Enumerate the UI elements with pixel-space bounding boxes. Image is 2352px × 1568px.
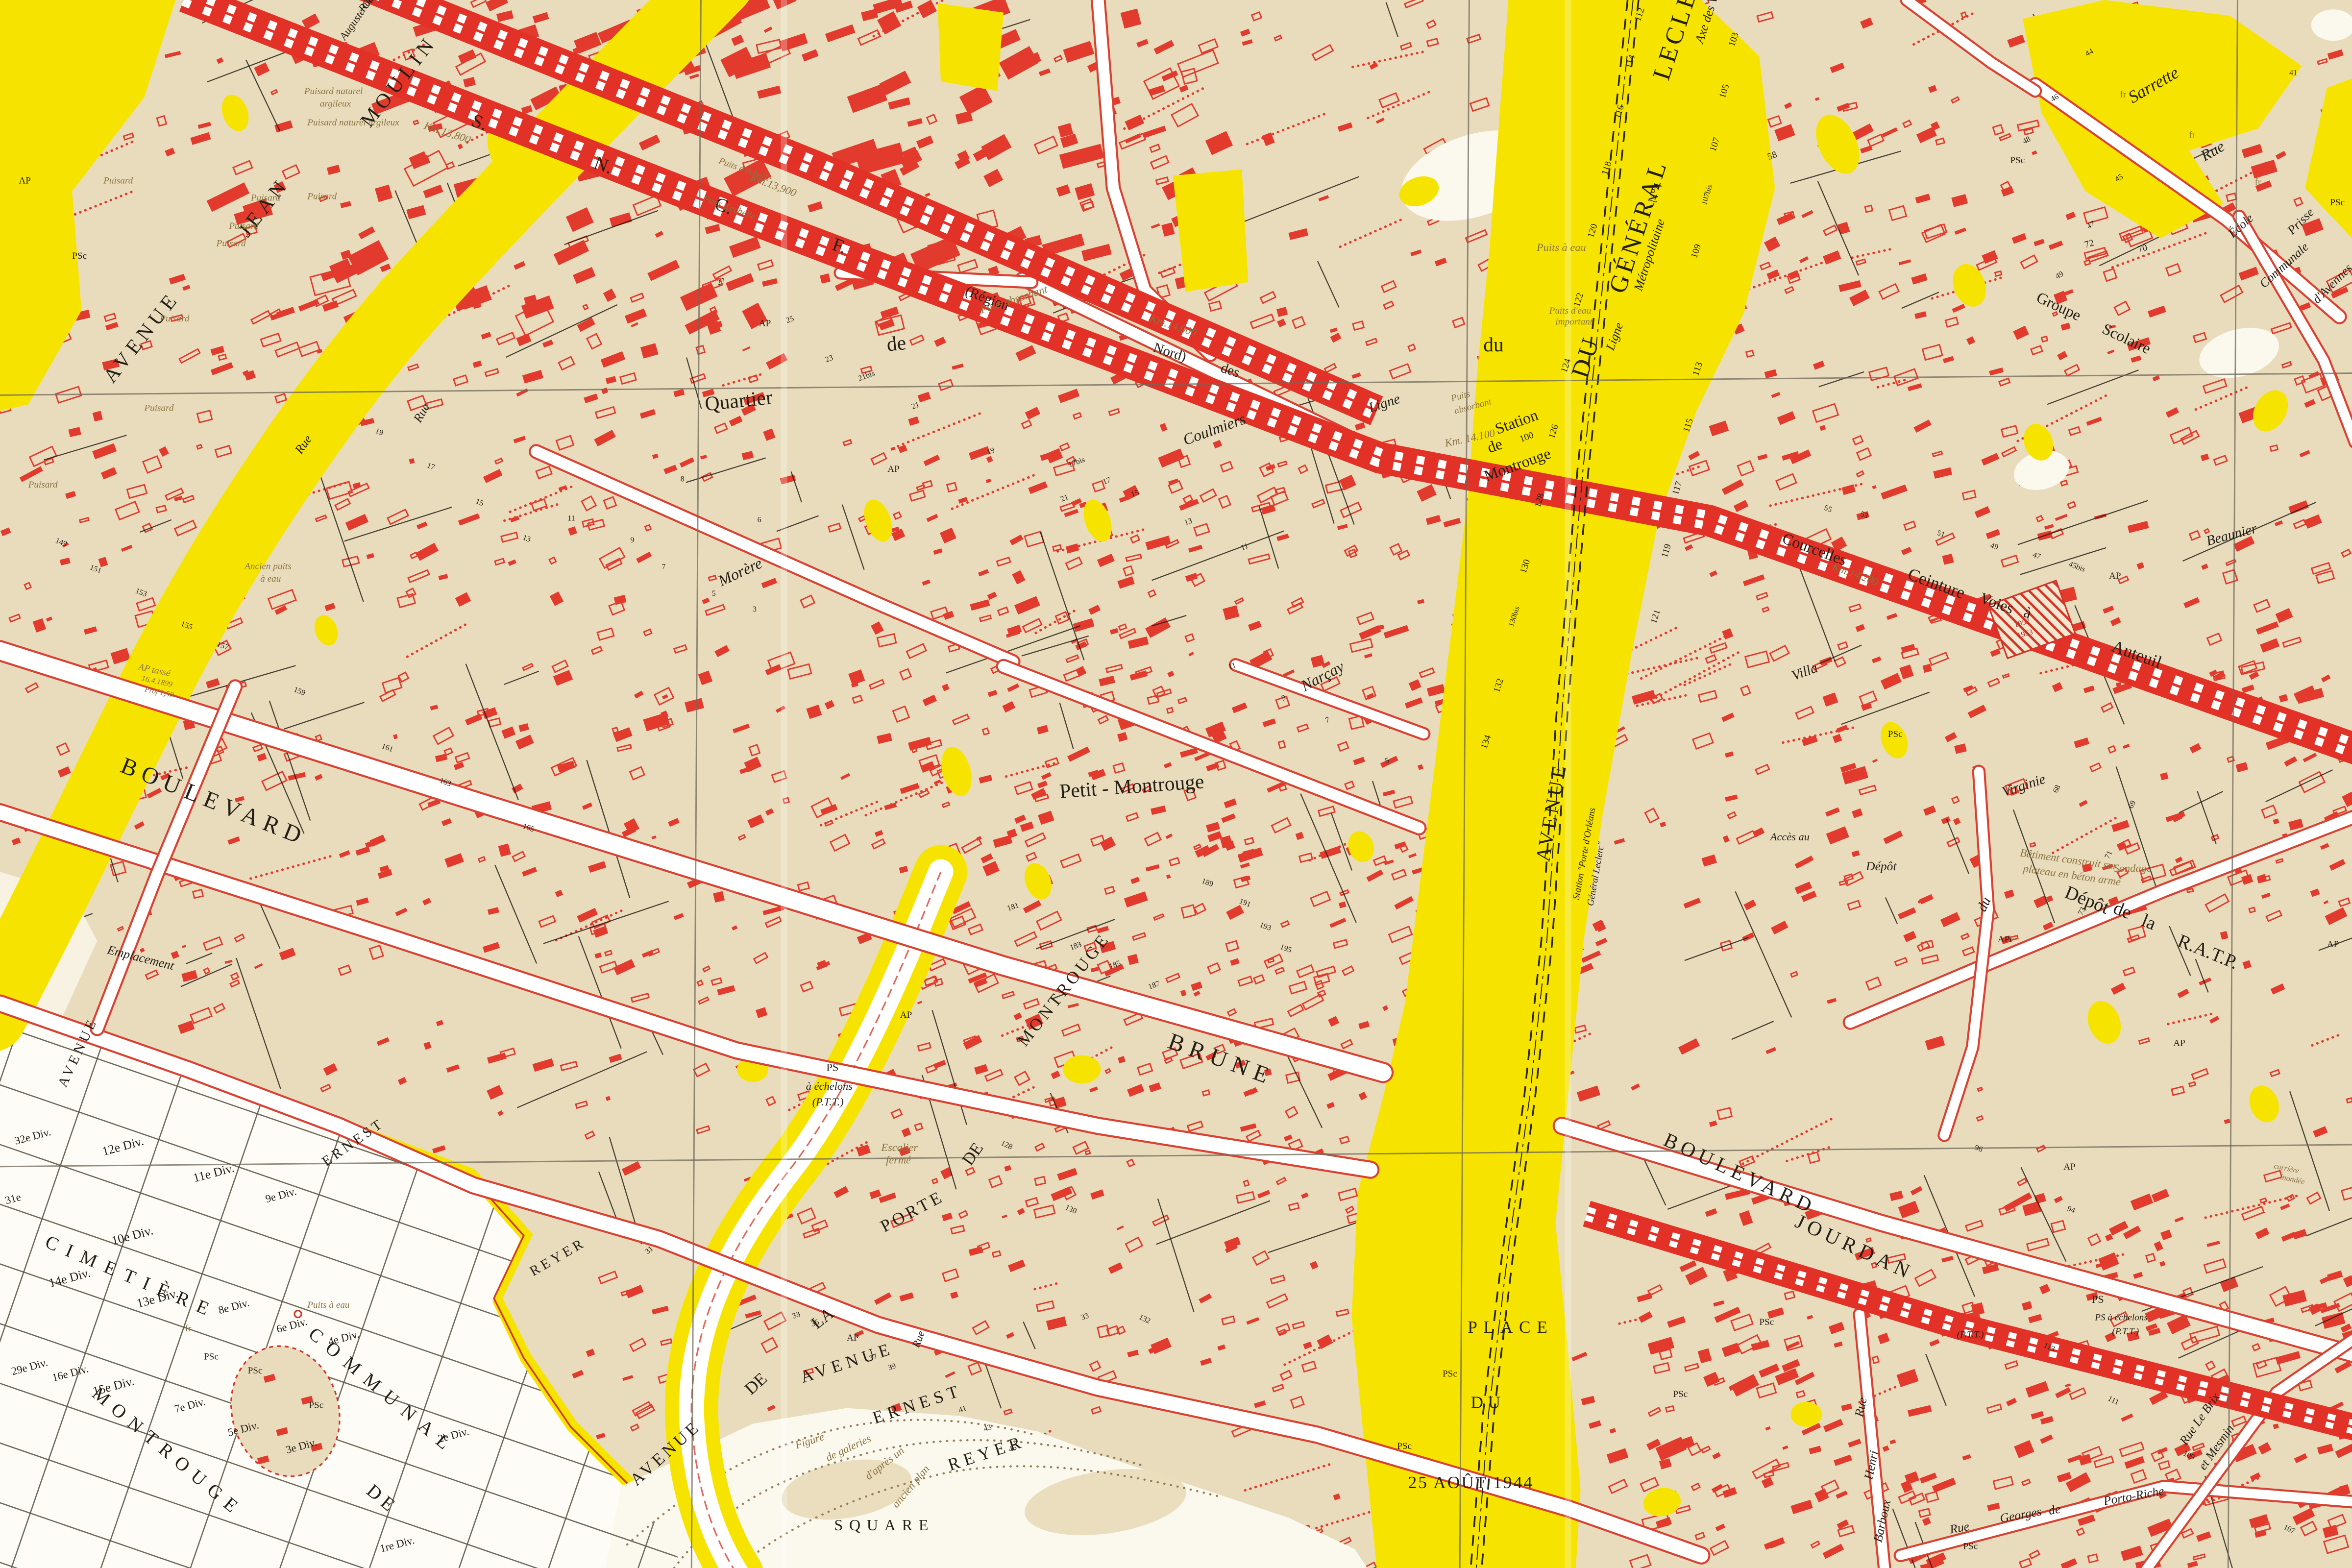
label-puisard-5: Puisard [216,238,246,248]
label-ap-marker-7: AP [900,1010,912,1020]
label-psc-bottom: PSc [1963,1542,1978,1552]
label-fr-marker-1: fr [2120,89,2126,99]
label-ps-echelons-ps: PS [826,1061,838,1074]
label-puisard-naturel-2: Puisard naturel argileux [307,118,399,128]
label-fr-marker-3: fr [2255,177,2261,188]
label-num-morere-7: 7 [661,563,665,571]
label-puisard-3: Puisard [307,191,337,201]
label-num-morere-8: 8 [681,475,685,483]
label-place-du: DU [1471,1393,1505,1412]
label-puisard-7: Puisard [144,403,173,413]
label-ap-marker-6: AP [2173,1038,2185,1048]
scanned-city-map-canvas: AVENUEJEANMOULINPuisardPuisardPuisardPui… [0,0,2352,1568]
label-psc-marker-3: PSc [2330,197,2345,208]
label-ancien-puits: Ancien puits [244,562,291,572]
label-accès-au: Accès au [1769,831,1810,843]
label-place-25-aout-1944: 25 AOÛT 1944 [1408,1472,1534,1492]
label-puisard-naturel-1b: argileux [320,99,351,109]
label-accès-depot: Dépôt [1865,859,1897,873]
label-puisard-4: Puisard [228,221,258,231]
label-psc-marker-1: PSc [72,251,87,261]
label-ps-echelons: à échelons [806,1080,853,1092]
label-num-morere-11: 11 [567,514,575,522]
label-num-morere-3: 3 [753,605,757,613]
label-ap-reyer: AP [847,1333,859,1343]
label-place-place: PLACE [1468,1318,1553,1337]
label-psc-marker-2: PSc [2010,155,2025,166]
label-puisard-naturel-1: Puisard naturel [304,86,363,97]
label-square: SQUARE [834,1516,934,1534]
label-puits-a-eau-leclerc: Puits à eau [1536,241,1586,253]
label-puisard-1: Puisard [103,175,133,186]
label-escalier-ferme-a: Escalier [881,1141,918,1153]
label-ptt-bottom: (P.T.T.) [1957,1330,1984,1340]
label-ap-marker-4: AP [2109,571,2121,581]
label-num-41: 41 [2289,69,2297,77]
label-psc-place-2: PSc [1397,1441,1412,1451]
label-quartier-du: du [1483,333,1504,356]
label-puits-a-eau-cem: Puits à eau [307,1300,349,1310]
label-ap-marker-5: AP [2327,939,2339,950]
label-ps-jourdan: PS [2092,1293,2104,1305]
label-num-morere-5: 5 [712,589,716,598]
label-psc-cem-2: PSc [248,1366,263,1376]
label-psc-jourdan-1: PSc [1759,1317,1774,1327]
label-sondage: Sondage [2114,862,2152,874]
label-num-morere-9: 9 [630,536,634,544]
label-puisard-8: Puisard [28,480,58,490]
label-escalier-ferme-b: fermé [886,1153,911,1166]
label-ap-marker-3: AP [887,464,900,474]
label-ancien-puits-b: à eau [260,574,281,584]
label-puisard-2: Puisard [250,193,280,203]
label-rue-porto-riche-de: de [2047,1501,2061,1518]
label-puits-eau-important-b: important [1555,317,1592,327]
label-ps-echelons-ptt2-a: PS à échelons [2094,1312,2148,1323]
label-psc-cem-1: PSc [204,1351,219,1362]
label-apc-marker: APc [1998,934,2014,945]
label-quartier-de: de [885,331,907,356]
label-puits-eau-important-a: Puits d'eau [1549,306,1592,316]
label-puisard-6: Puisard [159,314,189,324]
label-ps-echelons-ptt2-b: (P.T.T.) [2112,1326,2139,1337]
label-ap-marker-1: AP [19,175,31,186]
label-fr-marker-2: fr [2189,130,2195,141]
label-psc-jourdan-2: PSc [1673,1389,1688,1399]
label-ps-echelons-ptt: (P.T.T.) [812,1096,844,1108]
label-fr-cem: fr [185,1323,192,1334]
label-psc-marker-4: PSc [1888,729,1903,739]
label-psc-cem-3: PSc [309,1400,323,1411]
label-ap-jourdan: AP [2063,1162,2076,1172]
label-psc-place-1: PSc [1443,1369,1457,1379]
label-ap-marker-2: AP [759,318,771,329]
label-num-morere-6: 6 [758,516,761,524]
